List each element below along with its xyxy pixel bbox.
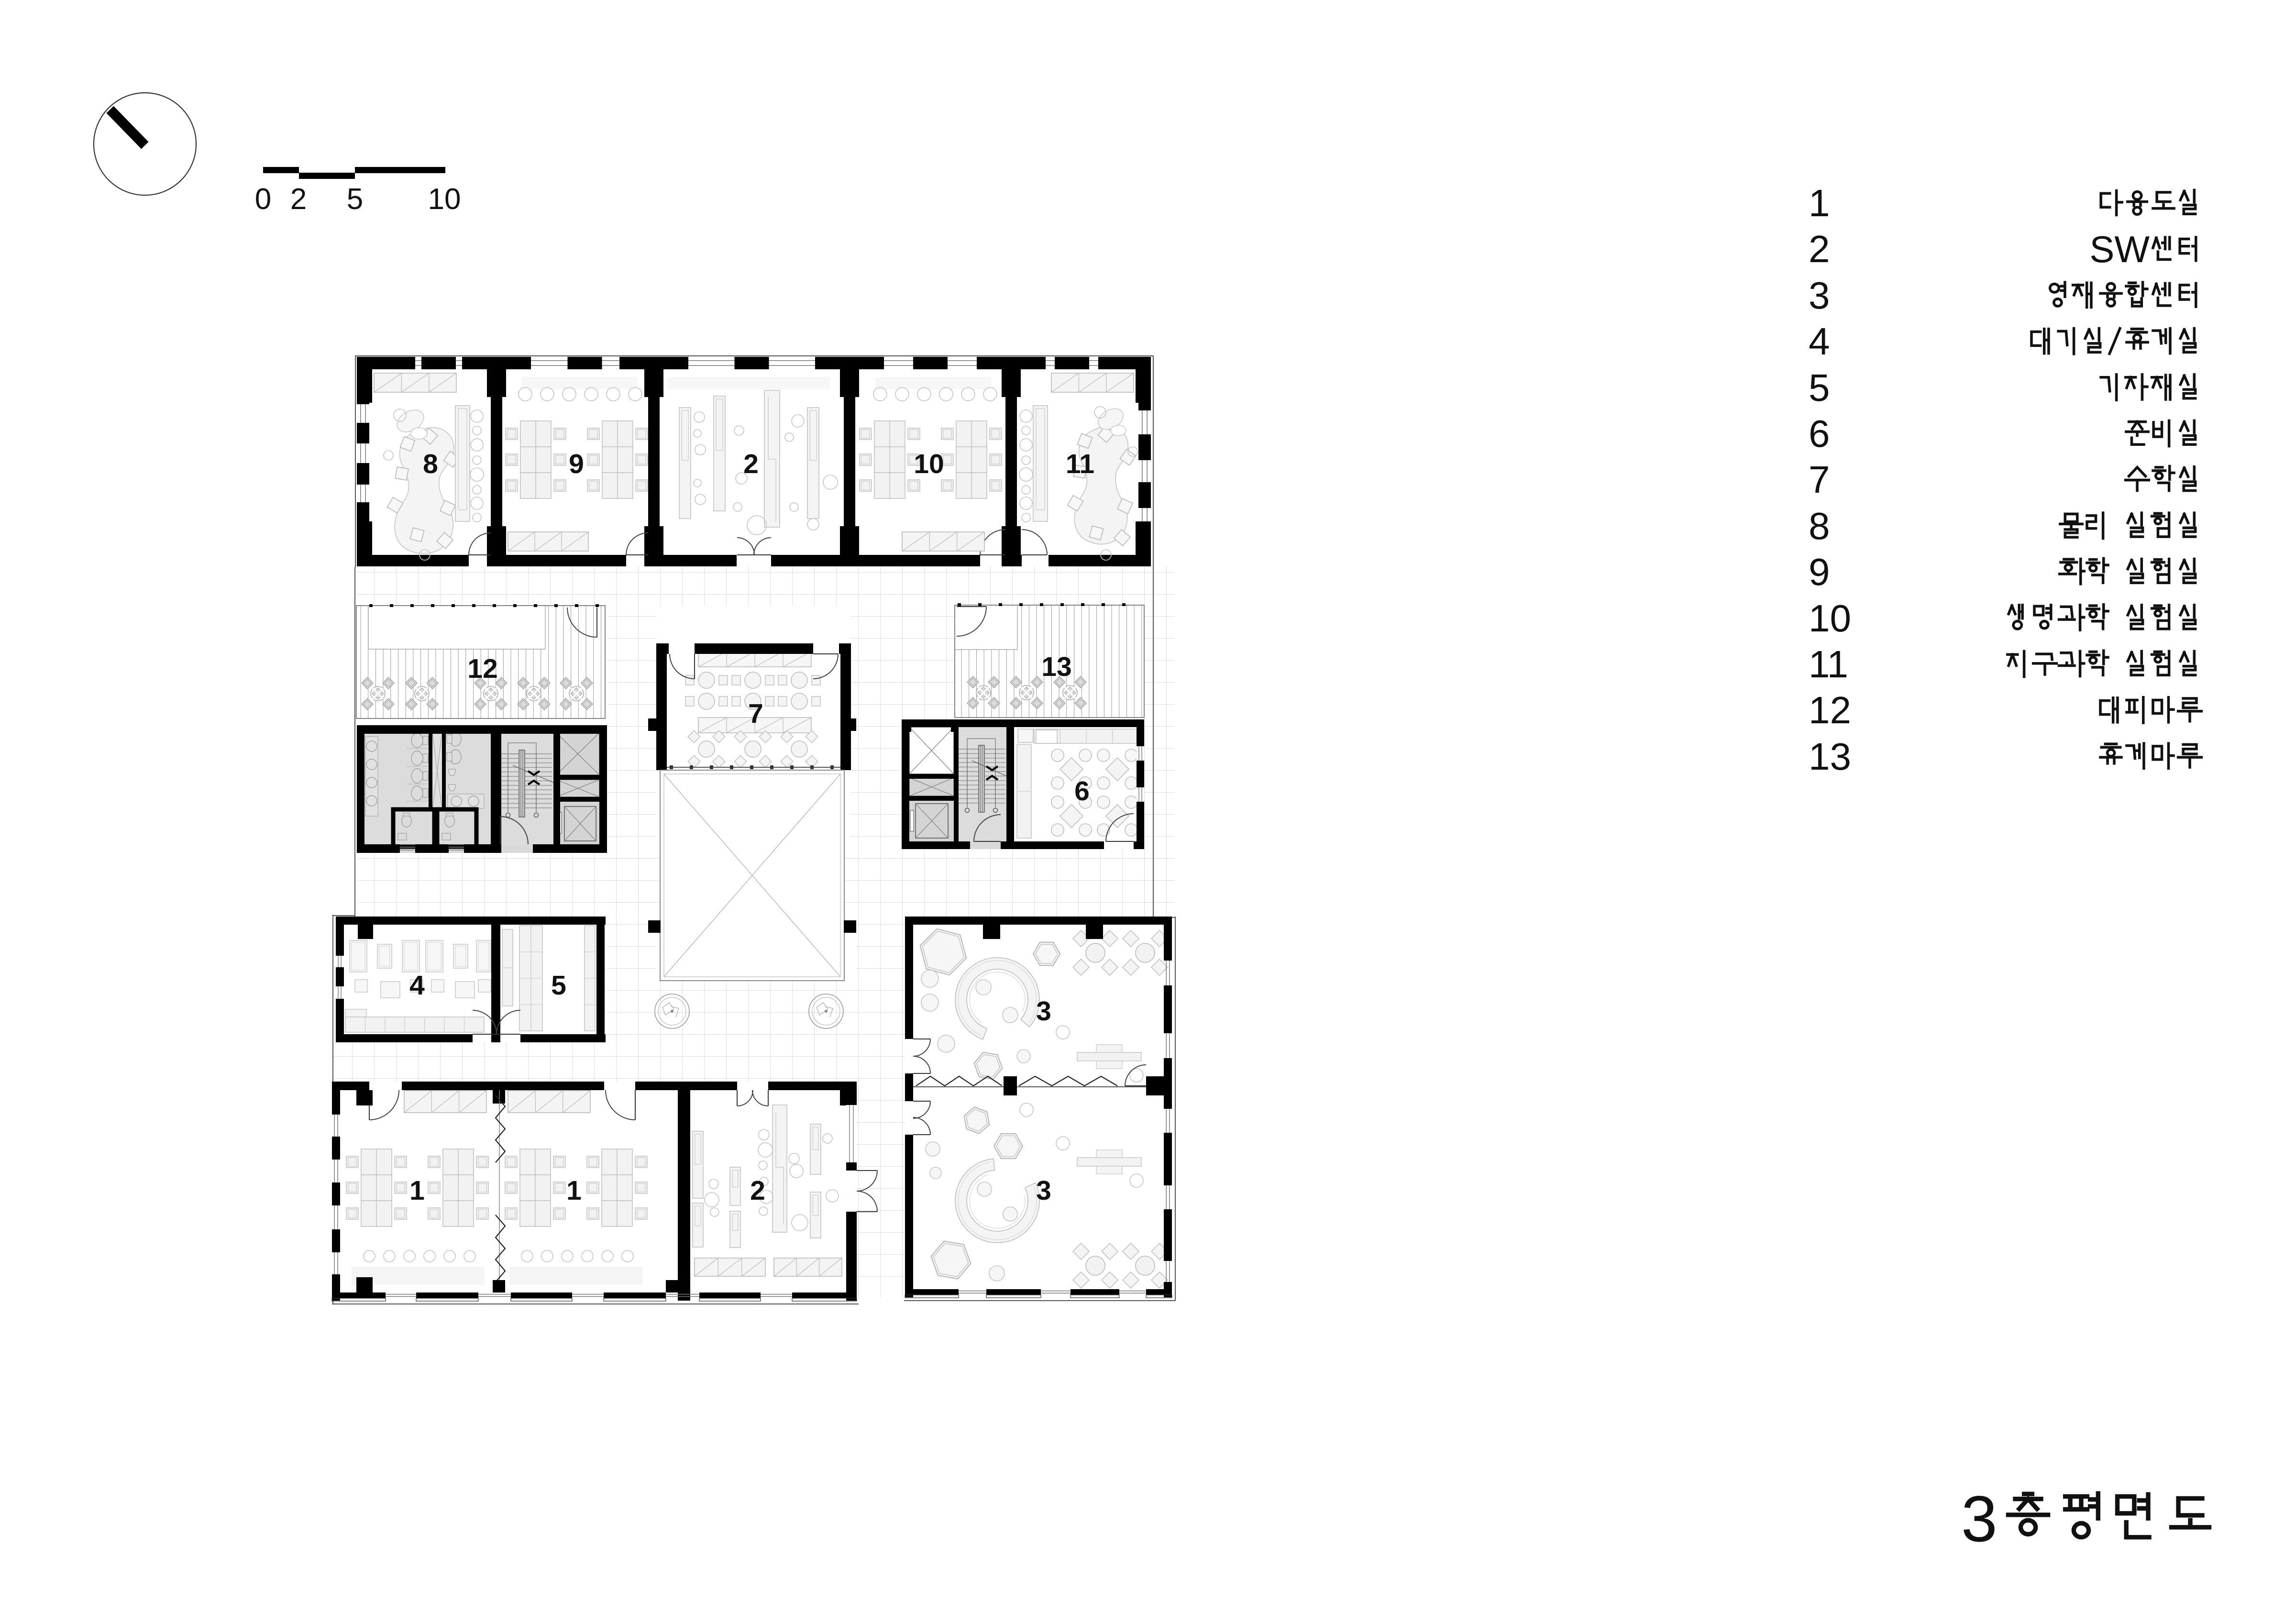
svg-text:7: 7 bbox=[1809, 458, 1830, 501]
svg-text:2: 2 bbox=[743, 449, 759, 479]
svg-text:0: 0 bbox=[255, 183, 271, 216]
svg-text:10: 10 bbox=[1809, 597, 1851, 640]
svg-text:5: 5 bbox=[347, 183, 363, 216]
svg-text:3: 3 bbox=[1809, 274, 1830, 317]
svg-text:5: 5 bbox=[1809, 366, 1830, 409]
svg-text:5: 5 bbox=[551, 970, 566, 1001]
svg-text:12: 12 bbox=[467, 653, 497, 684]
svg-text:6: 6 bbox=[1809, 412, 1830, 455]
svg-text:3: 3 bbox=[1036, 1175, 1051, 1206]
svg-text:2: 2 bbox=[750, 1175, 765, 1206]
svg-text:10: 10 bbox=[914, 449, 944, 479]
svg-text:1: 1 bbox=[566, 1175, 582, 1206]
svg-text:13: 13 bbox=[1041, 652, 1071, 682]
svg-text:2: 2 bbox=[1809, 228, 1830, 270]
svg-text:1: 1 bbox=[1809, 182, 1830, 224]
svg-text:3: 3 bbox=[1036, 996, 1051, 1027]
svg-text:6: 6 bbox=[1074, 776, 1090, 806]
svg-text:3: 3 bbox=[1961, 1482, 1998, 1555]
svg-text:1: 1 bbox=[409, 1175, 425, 1206]
svg-text:11: 11 bbox=[1809, 643, 1848, 685]
svg-text:2: 2 bbox=[290, 183, 307, 216]
svg-text:SW: SW bbox=[2089, 228, 2150, 270]
svg-text:7: 7 bbox=[748, 698, 763, 729]
svg-text:10: 10 bbox=[428, 183, 461, 216]
svg-text:9: 9 bbox=[569, 449, 584, 479]
svg-text:8: 8 bbox=[423, 449, 438, 479]
svg-text:8: 8 bbox=[1809, 505, 1830, 547]
svg-text:4: 4 bbox=[1809, 320, 1830, 363]
svg-text:12: 12 bbox=[1809, 689, 1851, 731]
svg-text:11: 11 bbox=[1066, 449, 1094, 479]
svg-text:13: 13 bbox=[1809, 735, 1851, 778]
svg-text:4: 4 bbox=[409, 970, 425, 1001]
svg-text:9: 9 bbox=[1809, 551, 1830, 593]
